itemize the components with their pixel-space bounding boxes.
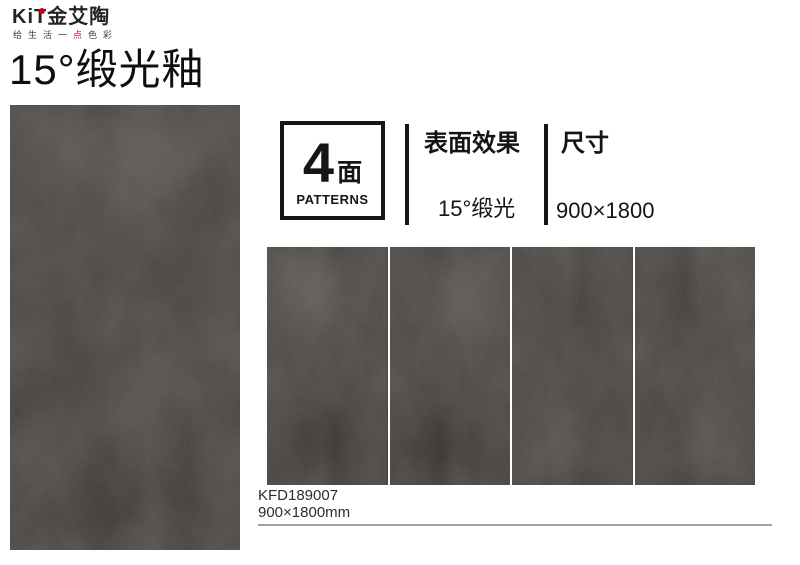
- spec-divider: [405, 124, 409, 225]
- tile-texture: [390, 247, 511, 485]
- patterns-count-box: 4 面 PATTERNS: [280, 121, 385, 220]
- patterns-count: 4: [303, 135, 334, 191]
- pattern-swatch-1: [267, 247, 388, 485]
- spec-surface-title: 表面效果: [424, 132, 520, 156]
- product-tile-photo: [10, 105, 240, 550]
- spec-size-title: 尺寸: [561, 132, 609, 156]
- pattern-swatch-2: [390, 247, 511, 485]
- tile-texture: [10, 105, 240, 550]
- tagline-left: 给生活一: [13, 30, 73, 40]
- product-size: 900×1800mm: [258, 505, 350, 520]
- catalog-page: KiT金艾陶 给生活一点色彩 15°缎光釉 4 面 PATTERNS 表面效果 …: [0, 0, 800, 565]
- brand-tagline: 给生活一点色彩: [13, 31, 118, 40]
- spec-surface-value: 15°缎光: [438, 198, 515, 220]
- patterns-count-row: 4 面: [303, 135, 362, 191]
- pattern-swatch-3: [512, 247, 633, 485]
- spec-size-value: 900×1800: [556, 200, 655, 222]
- brand-logo-text: KiT金艾陶: [12, 7, 110, 27]
- pattern-swatch-strip: [267, 247, 755, 485]
- tagline-right: 色彩: [88, 30, 118, 40]
- product-code: KFD189007: [258, 488, 338, 503]
- tile-texture: [512, 247, 633, 485]
- spec-divider: [544, 124, 548, 225]
- tile-texture: [635, 247, 756, 485]
- page-title: 15°缎光釉: [9, 49, 205, 91]
- patterns-label: PATTERNS: [296, 192, 368, 207]
- bottom-rule: [258, 524, 772, 526]
- brand-logo: KiT金艾陶: [12, 7, 110, 27]
- tagline-accent: 点: [73, 30, 88, 40]
- logo-accent-dot-icon: [39, 8, 45, 14]
- patterns-unit: 面: [337, 161, 362, 186]
- tile-texture: [267, 247, 388, 485]
- pattern-swatch-4: [635, 247, 756, 485]
